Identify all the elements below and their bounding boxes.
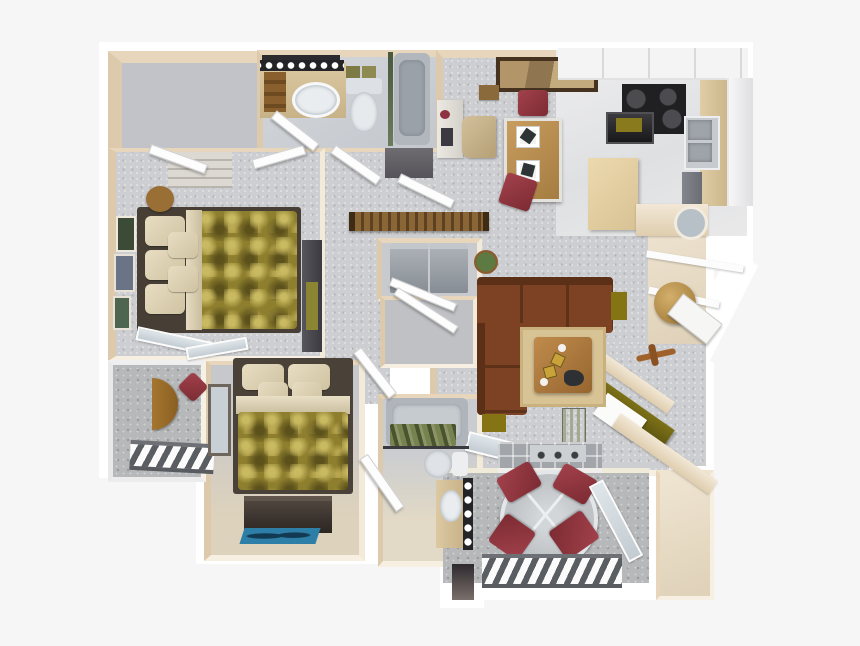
room-walk-in-closet — [108, 51, 277, 161]
console-table — [349, 212, 489, 231]
curtain-rod — [383, 446, 469, 449]
wall-art — [113, 296, 131, 330]
dryer — [430, 243, 468, 293]
table-decor — [540, 378, 548, 386]
vanity-2-sink — [440, 490, 462, 522]
sink-basin — [688, 120, 712, 140]
wall-mirror — [208, 384, 231, 456]
entry-oval-mirror — [674, 206, 708, 240]
dining-chair — [518, 90, 548, 116]
towel — [346, 66, 360, 78]
table-decor — [558, 344, 566, 352]
bath-sink — [292, 82, 340, 118]
table-decor-dark — [564, 370, 584, 386]
bed-pillow — [168, 232, 198, 258]
refrigerator — [727, 78, 753, 206]
sink-basin — [688, 143, 712, 162]
upper-cabinets — [558, 48, 748, 80]
firebox — [530, 445, 586, 462]
vanity-2-lights — [463, 478, 473, 550]
shower-curtain — [390, 424, 456, 446]
bed-pillow — [168, 266, 198, 292]
toilet-bowl — [350, 92, 378, 132]
desk-items — [440, 110, 450, 119]
towel — [362, 66, 376, 78]
balcony-railing — [129, 440, 214, 474]
wall-art — [116, 216, 136, 252]
wall-art — [114, 254, 135, 292]
kitchen-island — [588, 158, 638, 230]
sofa-end-table — [611, 292, 627, 320]
bath-mat — [452, 452, 468, 476]
blue-rug — [239, 528, 320, 544]
dishwasher — [682, 172, 702, 206]
vanity-lights — [260, 60, 344, 71]
desk-chair — [462, 116, 496, 158]
second-bed-comforter — [238, 412, 348, 490]
sofa-end-table — [482, 414, 506, 432]
floor-plant — [474, 250, 498, 274]
toilet-2 — [424, 450, 452, 478]
round-side-table — [146, 186, 174, 212]
tv-screen — [306, 282, 318, 330]
oven-window — [616, 118, 642, 132]
toiletry-items — [264, 72, 286, 112]
master-bed-comforter — [198, 211, 297, 329]
patio-railing — [482, 554, 622, 588]
wall-shelf — [479, 85, 499, 100]
utility-niche — [452, 564, 474, 600]
desk-items — [441, 128, 453, 146]
room-hall-closet — [385, 148, 433, 178]
floor-plan-render — [0, 0, 860, 646]
bathtub-basin — [399, 60, 425, 136]
shower-screen — [388, 52, 393, 146]
